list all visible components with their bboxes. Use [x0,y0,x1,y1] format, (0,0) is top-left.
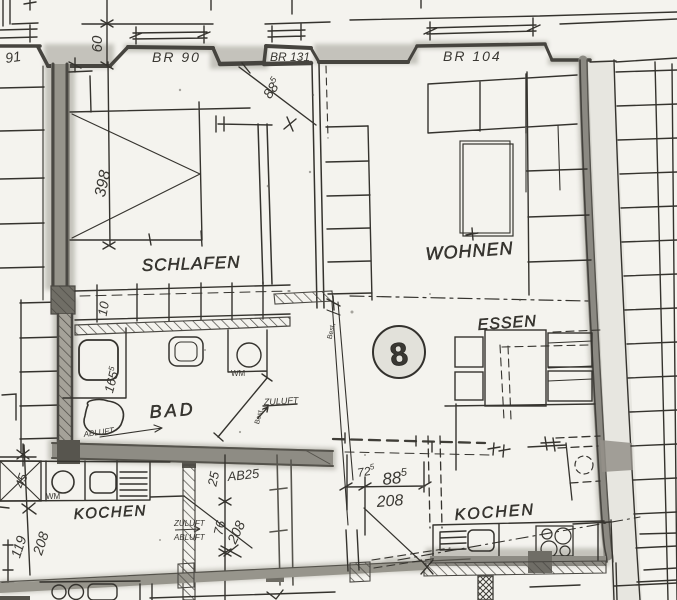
svg-text:WM: WM [231,369,246,378]
svg-text:BR 131: BR 131 [270,50,310,64]
svg-text:SCHLAFEN: SCHLAFEN [141,253,240,275]
svg-text:BR 104: BR 104 [443,48,502,64]
svg-text:WM: WM [46,492,61,501]
svg-text:ABLUFT: ABLUFT [173,533,206,542]
svg-text:91: 91 [4,48,22,66]
svg-text:208: 208 [375,492,404,511]
svg-text:60: 60 [89,35,106,52]
svg-text:ZULUFT: ZULUFT [263,395,300,407]
svg-text:BAD: BAD [149,399,196,422]
svg-text:BR 90: BR 90 [152,49,201,65]
svg-text:ZULUFT: ZULUFT [173,519,206,528]
